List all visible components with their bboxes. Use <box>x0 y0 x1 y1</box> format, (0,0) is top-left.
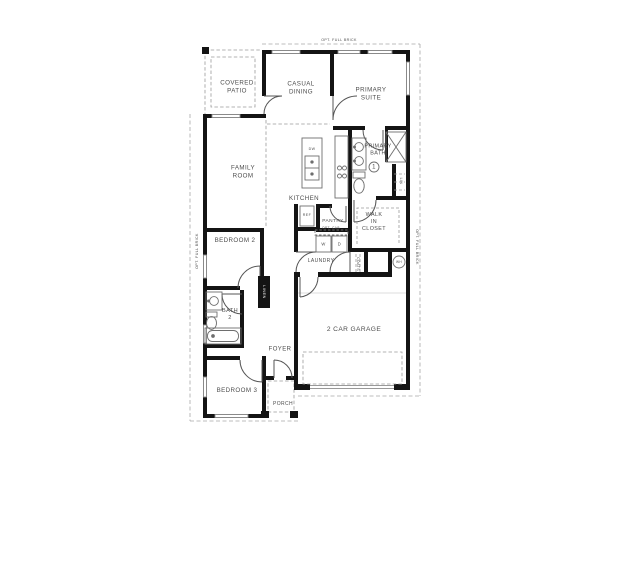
room-label-primary-bath: PRIMARY BATH <box>364 143 391 157</box>
garage-entry-door <box>300 277 318 297</box>
opt-full-brick-left: OPT. FULL BRICK <box>194 233 198 269</box>
primary-suite-door <box>333 96 357 120</box>
garage-door <box>298 293 406 389</box>
room-label-bath-2: BATH 2 <box>222 308 238 322</box>
primary-toilet <box>353 172 365 193</box>
room-label-walk-in-closet: WALK IN CLOSET <box>362 212 386 232</box>
floor-plan-page: COVERED PATIO CASUAL DINING PRIMARY SUIT… <box>0 0 617 582</box>
dryer-label: D <box>338 241 341 246</box>
linen-hall-label: LINEN <box>262 285 266 299</box>
room-label-primary-suite: PRIMARY SUITE <box>356 86 387 102</box>
bedroom3-door <box>240 360 262 382</box>
coats-label: COATS <box>355 257 359 271</box>
opt-full-brick-right: OPT. FULL BRICK <box>414 229 418 265</box>
room-label-garage: 2 CAR GARAGE <box>327 326 381 334</box>
room-label-family-room: FAMILY ROOM <box>231 164 255 180</box>
room-label-bedroom-3: BEDROOM 3 <box>217 387 258 395</box>
room-label-laundry: LAUNDRY <box>308 258 335 264</box>
bedroom2-door <box>238 266 260 288</box>
washer-dryer <box>315 230 348 252</box>
linen-bath-label: LIN <box>398 178 402 185</box>
keynote-1-label: 1 <box>372 164 376 172</box>
kitchen-island <box>302 138 322 188</box>
opt-full-brick-top: OPT. FULL BRICK <box>321 38 357 42</box>
room-label-porch: PORCH <box>273 401 293 407</box>
room-label-foyer: FOYER <box>269 346 292 354</box>
front-door <box>274 360 292 378</box>
room-label-casual-dining: CASUAL DINING <box>287 80 314 96</box>
room-label-bedroom-2: BEDROOM 2 <box>215 237 256 245</box>
dishwasher-label: DW <box>309 147 316 151</box>
windows <box>204 51 410 418</box>
room-label-pantry: PANTRY <box>322 219 343 225</box>
room-label-covered-patio: COVERED PATIO <box>220 79 253 95</box>
kitchen-counter-cooktop <box>335 136 348 198</box>
refrigerator-label: REF <box>303 213 311 217</box>
washer-label: W <box>321 241 325 246</box>
water-heater-label: WH <box>396 260 402 264</box>
room-label-kitchen: KITCHEN <box>289 195 319 203</box>
exterior-walls <box>202 47 410 418</box>
opt-cabinet-label: OPT. CAB <box>322 226 340 230</box>
patio-door <box>264 96 282 114</box>
